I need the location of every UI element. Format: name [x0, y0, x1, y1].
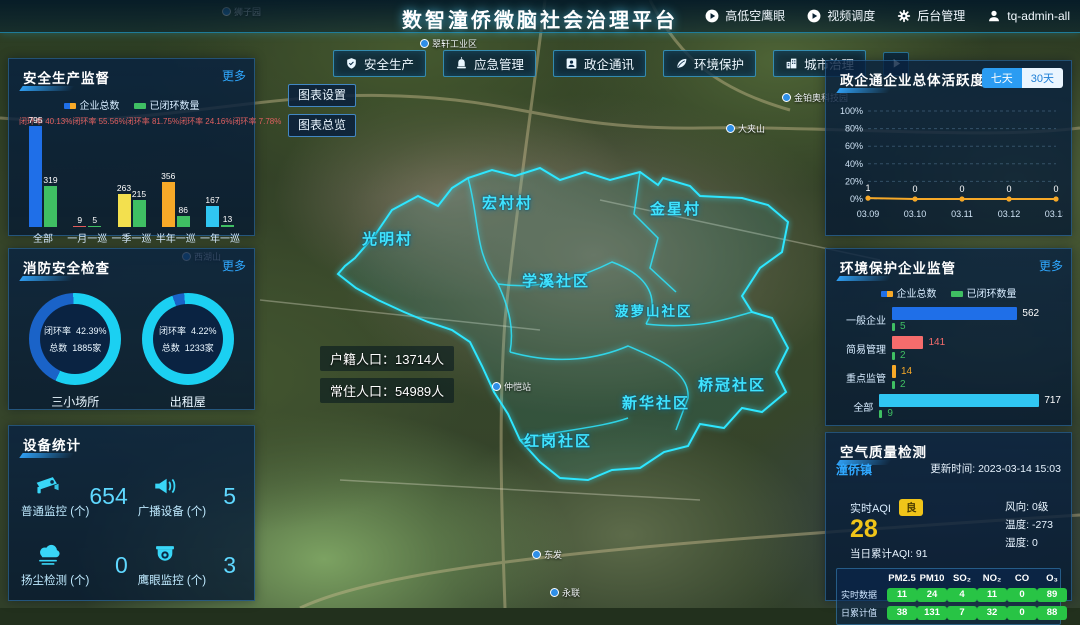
- play-circle-icon: [807, 9, 821, 23]
- env-bar-total: [892, 365, 896, 378]
- bar-value-label: 9: [77, 215, 82, 225]
- x-tick-label: 03.10: [904, 209, 927, 219]
- bar-total: 263: [118, 194, 131, 227]
- x-tick-label: 03.11: [951, 209, 973, 219]
- env-category-label: 全部: [836, 399, 879, 414]
- bar-group: 35686半年一巡: [154, 126, 198, 245]
- env-bar-total: [879, 394, 1039, 407]
- point-value-label: 0: [1006, 184, 1011, 194]
- point-value-label: 1: [865, 183, 870, 193]
- x-tick-label: 03.09: [857, 209, 880, 219]
- env-bar-row: 全部7179: [836, 393, 1061, 419]
- pollutant-value-badge: 11: [977, 588, 1007, 602]
- env-bar-row: 简易管理1412: [836, 335, 1061, 361]
- safety-more-link[interactable]: 更多: [222, 67, 246, 84]
- shield-icon: [345, 57, 358, 70]
- tab-safety-production[interactable]: 安全生产: [333, 50, 426, 77]
- x-tick-label: 03.12: [998, 209, 1021, 219]
- device-value: 3: [223, 552, 236, 579]
- district-label: 红岗社区: [524, 430, 592, 451]
- gear-icon: [897, 9, 911, 23]
- donut-rental-houses: 闭环率 4.22% 总数 1233家 出租屋: [142, 293, 234, 410]
- env-bar-total: [892, 336, 923, 349]
- env-closed-value: 5: [900, 321, 906, 332]
- bar-value-label: 5: [92, 215, 97, 225]
- pollutant-table: PM2.5PM10SO₂NO₂COO₃实时数据1124411089日累计值381…: [836, 568, 1061, 625]
- aerial-eagle-eye-button[interactable]: 高低空鹰眼: [705, 7, 785, 24]
- air-town-label: 潼侨镇: [836, 461, 872, 478]
- module-tabs: 安全生产 应急管理 政企通讯 环境保护 城市治理: [333, 50, 909, 77]
- safety-legend: 企业总数 已闭环数量: [19, 97, 244, 112]
- chart-settings-button[interactable]: 图表设置: [288, 84, 356, 107]
- point-value-label: 0: [1053, 184, 1058, 194]
- population-overlay: 户籍人口：13714人 常住人口：54989人: [320, 346, 454, 410]
- admin-backend-button[interactable]: 后台管理: [897, 7, 965, 24]
- device-broadcast: 广播设备 (个) 5: [136, 462, 244, 531]
- temperature-readout: 温度: -273: [1005, 517, 1053, 535]
- aqi-grade-badge: 良: [899, 499, 924, 516]
- bar-group: 95一月一巡: [65, 126, 109, 245]
- fire-donut-charts: 闭环率 42.39% 总数 1885家 三小场所 闭环率 4.22% 总数 12…: [19, 293, 244, 410]
- env-closed-value: 2: [900, 350, 906, 361]
- pollutant-header: SO₂: [947, 573, 977, 584]
- map-poi: 仲恺站: [492, 380, 531, 393]
- env-bar-closed: [892, 323, 895, 331]
- bar-group: 263215一季一巡: [110, 126, 154, 245]
- bar-value-label: 795: [28, 115, 42, 125]
- bar-total: 167: [206, 206, 219, 227]
- point-value-label: 0: [912, 184, 917, 194]
- bar-value-label: 13: [223, 214, 232, 224]
- donut-chart: 闭环率 4.22% 总数 1233家: [142, 293, 234, 385]
- district-label: 桥冠社区: [698, 374, 766, 395]
- bar-category-label: 半年一巡: [156, 230, 196, 245]
- env-legend: 企业总数 已闭环数量: [836, 285, 1061, 300]
- activity-line-chart: 100%80%60%40%20%0%03.0903.1003.1103.1203…: [836, 99, 1063, 225]
- env-category-label: 简易管理: [836, 341, 892, 356]
- device-eagle-eye-cctv: 鹰眼监控 (个) 3: [136, 531, 244, 600]
- donut-label: 三小场所: [51, 393, 99, 410]
- panel-title: 空气质量检测: [836, 441, 1061, 461]
- legend-swatch-closed: [951, 291, 963, 297]
- env-bar-value: 562: [1022, 308, 1039, 319]
- donut-rate: 闭环率 4.22%: [159, 324, 217, 337]
- env-bar-value: 14: [901, 366, 912, 377]
- resident-population: 常住人口：54989人: [320, 378, 454, 403]
- air-main-readouts: 实时AQI 良 28 当日累计AQI: 91 风向: 0级 温度: -273 湿…: [836, 499, 1061, 561]
- bar-closed: 319: [44, 186, 57, 227]
- air-updated-time: 更新时间: 2023-03-14 15:03: [930, 461, 1061, 476]
- user-icon: [987, 9, 1001, 23]
- bar-value-label: 319: [43, 175, 57, 185]
- district-label: 光明村: [362, 228, 413, 249]
- env-bar-closed: [892, 352, 895, 360]
- dust-cloud-icon: [35, 544, 61, 566]
- bar-group: 795319全部: [21, 126, 65, 245]
- city-icon: [785, 57, 798, 70]
- line-point: [865, 196, 870, 201]
- bar-category-label: 全部: [33, 230, 53, 245]
- env-category-label: 一般企业: [836, 312, 892, 327]
- bar-value-label: 356: [161, 171, 175, 181]
- env-bar-row: 重点监管142: [836, 364, 1061, 390]
- district-label: 新华社区: [622, 392, 690, 413]
- map-poi: 东发: [532, 548, 562, 561]
- devices-grid: 普通监控 (个) 654 广播设备 (个) 5 扬尘检测 (个) 0 鹰眼监控 …: [19, 462, 244, 600]
- realtime-aqi-label: 实时AQI: [850, 500, 891, 516]
- y-tick-label: 40%: [845, 159, 863, 169]
- panel-environment-enterprise-supervision: 环境保护企业监管 更多 企业总数 已闭环数量 一般企业5625简易管理1412重…: [825, 248, 1072, 426]
- env-bar-closed: [892, 381, 895, 389]
- env-bar-chart: 一般企业5625简易管理1412重点监管142全部7179: [836, 306, 1061, 419]
- bar-closed: 215: [133, 200, 146, 227]
- safety-bar-chart: 795319全部95一月一巡263215一季一巡35686半年一巡16713一年…: [19, 129, 244, 245]
- y-tick-label: 20%: [845, 176, 863, 186]
- tab-gov-enterprise-comms[interactable]: 政企通讯: [553, 50, 646, 77]
- bar-value-label: 86: [179, 205, 188, 215]
- donut-small-places: 闭环率 42.39% 总数 1885家 三小场所: [29, 293, 121, 410]
- device-value: 0: [115, 552, 128, 579]
- bar-category-label: 一年一巡: [200, 230, 240, 245]
- pollutant-row-label: 实时数据: [841, 588, 887, 601]
- bar-category-label: 一季一巡: [112, 230, 152, 245]
- video-dispatch-button[interactable]: 视频调度: [807, 7, 875, 24]
- tab-emergency-management[interactable]: 应急管理: [443, 50, 536, 77]
- panel-device-statistics: 设备统计 普通监控 (个) 654 广播设备 (个) 5 扬尘检测 (个) 0: [8, 425, 255, 601]
- user-account-button[interactable]: tq-admin-all: [987, 9, 1070, 23]
- donut-label: 出租屋: [170, 393, 206, 410]
- line-point: [912, 196, 917, 201]
- fire-more-link[interactable]: 更多: [222, 257, 246, 274]
- bar-closed: 13: [221, 225, 234, 227]
- registered-population: 户籍人口：13714人: [320, 346, 454, 371]
- env-bar-total: [892, 307, 1017, 320]
- district-label: 宏村村: [482, 192, 533, 213]
- line-point: [1006, 196, 1011, 201]
- device-normal-cctv: 普通监控 (个) 654: [19, 462, 136, 531]
- env-bar-row: 一般企业5625: [836, 306, 1061, 332]
- wind-readout: 风向: 0级: [1005, 499, 1053, 517]
- humidity-readout: 湿度: 0: [1005, 535, 1053, 553]
- pollutant-header: PM10: [917, 573, 947, 584]
- toggle-seven-days[interactable]: 七天: [982, 68, 1022, 88]
- map-poi: 翠轩工业区: [420, 37, 477, 50]
- point-value-label: 0: [959, 184, 964, 194]
- pollutant-value-badge: 0: [1007, 588, 1037, 602]
- legend-swatch-total: [64, 103, 76, 109]
- panel-gov-enterprise-activity: 政企通企业总体活跃度 七天 30天 100%80%60%40%20%0%03.0…: [825, 60, 1072, 236]
- bar-total: 356: [162, 182, 175, 227]
- siren-icon: [455, 57, 468, 70]
- env-bar-closed: [879, 410, 882, 418]
- district-label: 菠萝山社区: [615, 300, 693, 320]
- cctv-camera-icon: [35, 475, 61, 497]
- bar-total: 795: [29, 126, 42, 227]
- pollutant-value-badge: 11: [887, 588, 917, 602]
- map-poi: 永联: [550, 586, 580, 599]
- panel-air-quality: 空气质量检测 潼侨镇 更新时间: 2023-03-14 15:03 实时AQI …: [825, 432, 1072, 601]
- chart-overview-button[interactable]: 图表总览: [288, 114, 356, 137]
- device-dust-detector: 扬尘检测 (个) 0: [19, 531, 136, 600]
- play-circle-icon: [705, 9, 719, 23]
- activity-range-toggle: 七天 30天: [982, 68, 1063, 88]
- panel-fire-safety-inspection: 消防安全检查 更多 闭环率 42.39% 总数 1885家 三小场所 闭环率 4…: [8, 248, 255, 410]
- line-point: [1053, 196, 1058, 201]
- env-bar-value: 141: [928, 337, 945, 348]
- env-closed-value: 9: [887, 408, 893, 419]
- megaphone-icon: [152, 475, 178, 497]
- page-title: 数智潼侨微脑社会治理平台: [402, 4, 678, 33]
- x-tick-label: 03.13: [1045, 209, 1063, 219]
- header-actions: 高低空鹰眼 视频调度 后台管理 tq-admin-all: [705, 7, 1070, 24]
- env-category-label: 重点监管: [836, 370, 892, 385]
- pollutant-value-badge: 89: [1037, 588, 1067, 602]
- aqi-value: 28: [850, 516, 928, 544]
- env-more-link[interactable]: 更多: [1039, 257, 1063, 274]
- pollutant-header: CO: [1007, 573, 1037, 584]
- donut-total: 总数 1885家: [49, 341, 101, 354]
- district-label: 学溪社区: [522, 270, 590, 291]
- panel-title: 消防安全检查: [19, 257, 244, 277]
- pollutant-header: PM2.5: [887, 573, 917, 584]
- y-tick-label: 0%: [850, 194, 863, 204]
- panel-safety-production-supervision: 安全生产监督 更多 企业总数 已闭环数量 闭环率 40.13%闭环率 55.56…: [8, 58, 255, 236]
- tab-environment-protection[interactable]: 环境保护: [663, 50, 756, 77]
- bar-total: 9: [73, 226, 86, 227]
- device-value: 654: [89, 483, 127, 510]
- env-bar-value: 717: [1044, 395, 1061, 406]
- leaf-icon: [675, 57, 688, 70]
- dome-camera-icon: [152, 544, 178, 566]
- donut-chart: 闭环率 42.39% 总数 1885家: [29, 293, 121, 385]
- daily-aqi: 当日累计AQI: 91: [850, 546, 928, 561]
- bar-category-label: 一月一巡: [67, 230, 107, 245]
- y-tick-label: 60%: [845, 141, 863, 151]
- contact-icon: [565, 57, 578, 70]
- panel-title: 安全生产监督: [19, 67, 244, 87]
- bar-value-label: 167: [205, 195, 219, 205]
- donut-rate: 闭环率 42.39%: [44, 324, 107, 337]
- line-point: [959, 196, 964, 201]
- pollutant-value-badge: 4: [947, 588, 977, 602]
- bar-closed: 86: [177, 216, 190, 227]
- pollutant-value-badge: 24: [917, 588, 947, 602]
- toggle-thirty-days[interactable]: 30天: [1022, 68, 1063, 88]
- y-tick-label: 80%: [845, 124, 863, 134]
- panel-title: 环境保护企业监管: [836, 257, 1061, 277]
- district-label: 金星村: [650, 198, 701, 219]
- legend-swatch-total: [881, 291, 893, 297]
- donut-total: 总数 1233家: [162, 341, 214, 354]
- env-closed-value: 2: [900, 379, 906, 390]
- panel-title: 设备统计: [19, 434, 244, 454]
- device-value: 5: [223, 483, 236, 510]
- legend-swatch-closed: [134, 103, 146, 109]
- y-tick-label: 100%: [840, 106, 863, 116]
- bar-closed: 5: [88, 226, 101, 227]
- pollutant-header: NO₂: [977, 573, 1007, 584]
- bar-group: 16713一年一巡: [198, 126, 242, 245]
- bar-value-label: 215: [132, 189, 146, 199]
- map-poi: 大夹山: [726, 122, 765, 135]
- bar-value-label: 263: [117, 183, 131, 193]
- pollutant-header: O₃: [1037, 573, 1067, 584]
